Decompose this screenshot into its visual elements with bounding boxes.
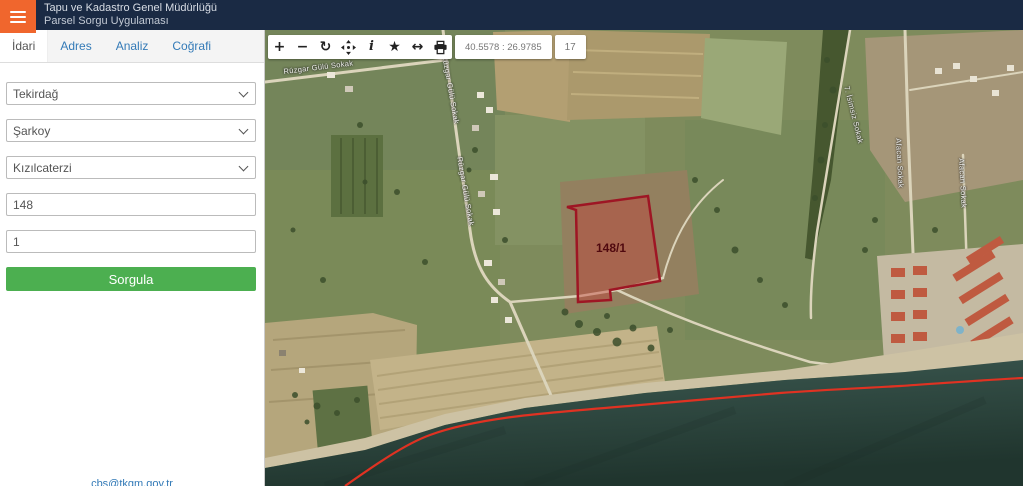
sidebar: İdari Adres Analiz Coğrafi Tekirdağ Şark… bbox=[0, 30, 265, 486]
satellite-imagery: 148/1 bbox=[265, 30, 1023, 486]
neighborhood-select[interactable]: Kızılcaterzi bbox=[6, 156, 256, 179]
print-icon[interactable] bbox=[429, 35, 452, 59]
tab-idari[interactable]: İdari bbox=[0, 30, 48, 62]
province-select[interactable]: Tekirdağ bbox=[6, 82, 256, 105]
parcel-number-input[interactable] bbox=[6, 230, 256, 253]
tab-bar: İdari Adres Analiz Coğrafi bbox=[0, 30, 264, 63]
app-title: Tapu ve Kadastro Genel Müdürlüğü Parsel … bbox=[44, 2, 217, 28]
app-title-line1: Tapu ve Kadastro Genel Müdürlüğü bbox=[44, 2, 217, 15]
tab-adres[interactable]: Adres bbox=[48, 30, 103, 62]
map-tool-group: + − ↻ i ★ ↔ bbox=[268, 35, 452, 59]
favorites-icon[interactable]: ★ bbox=[383, 35, 406, 59]
zoom-in-icon[interactable]: + bbox=[268, 35, 291, 59]
hamburger-menu-icon[interactable] bbox=[0, 0, 36, 33]
measure-icon[interactable]: ↔ bbox=[406, 35, 429, 59]
map-canvas[interactable]: 148/1 Rüzgar Gülü Sokak Rüzgar Gülü Soka… bbox=[265, 30, 1023, 486]
map-toolbar: + − ↻ i ★ ↔ 40.5578 : 26.9785 bbox=[268, 35, 586, 59]
zoom-level-display: 17 bbox=[555, 42, 586, 53]
sidebar-footer: cbs@tkgm.gov.tr bbox=[0, 474, 264, 486]
app-header: Tapu ve Kadastro Genel Müdürlüğü Parsel … bbox=[0, 0, 1023, 30]
zoom-level-box: 17 bbox=[555, 35, 586, 59]
pan-icon[interactable] bbox=[337, 35, 360, 59]
contact-email-link[interactable]: cbs@tkgm.gov.tr bbox=[91, 478, 173, 486]
parcel-label: 148/1 bbox=[596, 241, 626, 255]
coordinate-display-box: 40.5578 : 26.9785 bbox=[455, 35, 552, 59]
sorgula-button[interactable]: Sorgula bbox=[6, 267, 256, 291]
zoom-out-icon[interactable]: − bbox=[291, 35, 314, 59]
coordinate-display: 40.5578 : 26.9785 bbox=[455, 42, 552, 53]
query-form: Tekirdağ Şarkoy Kızılcaterzi Sorgula bbox=[0, 63, 264, 291]
refresh-icon[interactable]: ↻ bbox=[314, 35, 337, 59]
district-select[interactable]: Şarkoy bbox=[6, 119, 256, 142]
tab-analiz[interactable]: Analiz bbox=[104, 30, 161, 62]
block-number-input[interactable] bbox=[6, 193, 256, 216]
info-icon[interactable]: i bbox=[360, 35, 383, 59]
tab-cografi[interactable]: Coğrafi bbox=[160, 30, 223, 62]
app-title-line2: Parsel Sorgu Uygulaması bbox=[44, 15, 217, 28]
